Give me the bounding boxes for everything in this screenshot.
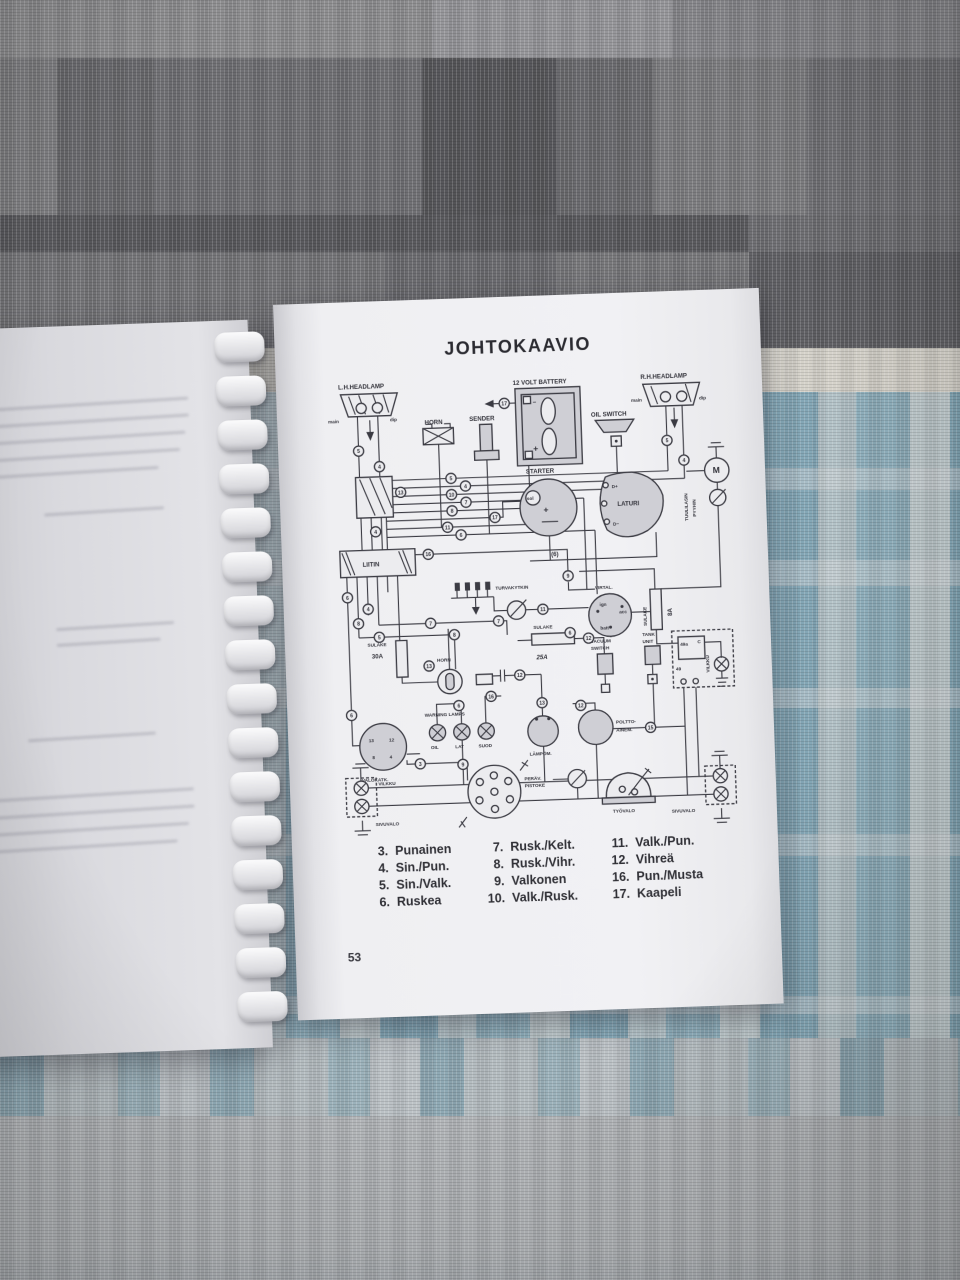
legend-column-2: 7.Rusk./Kelt. 8.Rusk./Vihr. 9.Valkonen 1…: [477, 838, 578, 906]
fuse25-amp: 25A: [535, 654, 547, 661]
relay-49a: 49a: [680, 642, 688, 647]
lh-headlamp-label: L.H.HEADLAMP: [338, 383, 384, 392]
tank-unit: TANK UNIT: [642, 632, 661, 684]
vacuum-label-2: SWITCH: [591, 646, 610, 652]
junction-number: 11: [445, 525, 451, 531]
legend-color: Punainen: [395, 842, 452, 858]
tank-label-2: UNIT: [642, 639, 653, 644]
starter-plus: +: [543, 505, 548, 515]
binding-tooth: [222, 551, 273, 583]
vacuum-switch: VACUUM SWITCH: [591, 638, 614, 692]
legend-item: 6.Ruskea: [364, 893, 454, 910]
binding-tooth: [237, 991, 288, 1023]
legend-number: 10.: [479, 891, 505, 906]
legend-number: 8.: [478, 857, 504, 872]
wiring-diagram: L.H.HEADLAMP main dip HORN SENDER: [326, 367, 748, 838]
binding-tooth: [225, 639, 276, 671]
fuse8-amp: 8A: [667, 607, 674, 616]
lh-main-label: main: [328, 419, 339, 424]
poltto-label-1: POLTTO-: [616, 719, 637, 725]
legend-color: Sin./Valk.: [396, 876, 451, 892]
horn-label: HORN: [425, 419, 443, 427]
battery-label: 12 VOLT BATTERY: [513, 378, 567, 387]
legend-item: 17.Kaapeli: [604, 884, 704, 901]
virtal-ign: ign: [600, 602, 607, 607]
junction-number: 4: [374, 530, 377, 536]
page-title: JOHTOKAAVIO: [274, 328, 760, 366]
perav-label-1: PERÄV.: [524, 775, 541, 782]
motor-m-label: M: [713, 465, 721, 475]
photo-scene: JOHTOKAAVIO L.H.HEADLAMP: [0, 0, 960, 1280]
virtal-label: VIRTAL.: [595, 585, 613, 591]
junction-number: 7: [429, 621, 432, 627]
starter-label: STARTER: [526, 468, 555, 476]
junction-number: 13: [426, 664, 432, 670]
page-number: 53: [348, 950, 362, 964]
relay-vilkku-label: VILKKU: [705, 654, 711, 672]
legend-column-1: 3.Punainen 4.Sin./Pun. 5.Sin./Valk. 6.Ru…: [362, 842, 453, 910]
blurred-text-line: [57, 638, 161, 647]
legend-item: 12.Vihreä: [603, 850, 703, 867]
junction-number: 15: [648, 725, 654, 731]
blurred-text-line: [44, 506, 164, 516]
wire-color-legend: 3.Punainen 4.Sin./Pun. 5.Sin./Valk. 6.Ru…: [362, 833, 704, 910]
lh-dip-label: dip: [390, 417, 397, 422]
junction-number: 12: [578, 703, 584, 709]
junction-number: 17: [492, 515, 498, 521]
turvakytkin-label: TURVAKYTKIN: [495, 584, 529, 590]
rug-band-top: [0, 0, 960, 58]
legend-number: 5.: [363, 878, 389, 893]
binding-tooth: [220, 507, 271, 539]
alternator: D+ LATURI D−: [599, 471, 664, 538]
rh-headlamp: R.H.HEADLAMP main dip: [630, 372, 707, 421]
binding-tooth: [219, 463, 270, 495]
blurred-text-line: [0, 822, 189, 840]
legend-color: Sin./Pun.: [395, 859, 449, 875]
poltto-label-2: AINEM.: [616, 727, 632, 733]
legend-color: Rusk./Vihr.: [511, 855, 576, 871]
warning-lamps: WARNING LAMPS OIL LAT SUOD: [425, 711, 495, 751]
inline-switch: [568, 769, 587, 788]
legend-color: Valk./Pun.: [635, 833, 695, 849]
junction-number: 4: [378, 465, 381, 471]
junction-number: 4: [367, 607, 370, 613]
blurred-text-line: [28, 732, 156, 743]
binding-tooth: [226, 683, 277, 715]
manual-book: JOHTOKAAVIO L.H.HEADLAMP: [0, 279, 863, 1071]
legend-number: 7.: [477, 840, 503, 855]
legend-color: Valk./Rusk.: [512, 889, 578, 905]
junction-number: 8: [453, 633, 456, 639]
junction-number: 13: [398, 490, 404, 496]
temperature-gauge: LÄMPÖM.: [527, 715, 559, 757]
wiper-label-2: PYYHIN: [691, 499, 697, 517]
binding-tooth: [214, 331, 265, 363]
legend-number: 11.: [602, 836, 628, 851]
junction-number: 4: [682, 458, 685, 464]
battery: 12 VOLT BATTERY − +: [513, 377, 583, 465]
legend-item: 11.Valk./Pun.: [602, 833, 702, 850]
legend-item: 10.Valk./Rusk.: [479, 889, 578, 906]
lamp-oil-label: OIL: [431, 745, 439, 750]
left-lamps: VILKKU SIVUVALO: [345, 763, 400, 836]
junction-number: 13: [539, 701, 545, 707]
laturi-dminus: D−: [613, 521, 620, 526]
rug-band-bottom: [0, 1116, 960, 1280]
blurred-text-line: [0, 448, 180, 466]
wire-6-label: (6): [551, 551, 559, 558]
lh-headlamp: L.H.HEADLAMP main dip: [327, 383, 399, 434]
connector-pins: [455, 582, 491, 591]
fuel-gauge: POLTTO- AINEM.: [578, 709, 637, 746]
junction-number: 5: [666, 438, 669, 444]
binding-tooth: [231, 815, 282, 847]
blurred-text-line: [0, 413, 189, 432]
junction-number: 6: [460, 533, 463, 539]
junction-number: 9: [462, 762, 465, 768]
junction-number: 7: [497, 619, 500, 625]
dip-switch-box: [355, 476, 393, 518]
legend-color: Vihreä: [636, 851, 674, 866]
legend-number: 17.: [604, 887, 630, 902]
junction-number: 9: [567, 574, 570, 580]
blurred-text-line: [0, 431, 185, 450]
junction-number: 6: [569, 631, 572, 637]
binding-tooth: [232, 859, 283, 891]
blurred-text-line: [0, 805, 195, 824]
rug-band-dark-gray: [0, 58, 960, 215]
junction-number: 17: [501, 401, 507, 407]
blurred-text-line: [0, 397, 188, 415]
wiper-motor: M TUULILASIN PYYHIN: [681, 442, 730, 521]
junction-number: 4: [464, 484, 467, 490]
rh-main-label: main: [631, 398, 642, 403]
junction-number: 5: [378, 635, 381, 641]
starter-sol-label: sol: [527, 496, 534, 501]
oil-switch: OIL SWITCH: [591, 410, 635, 447]
warning-lamps-label: WARNING LAMPS: [425, 712, 465, 718]
legend-number: 3.: [362, 844, 388, 859]
legend-number: 4.: [363, 861, 389, 876]
legend-color: Kaapeli: [637, 885, 682, 901]
junction-number: 5: [449, 476, 452, 482]
binding-tooth: [228, 727, 279, 759]
blurred-text-line: [0, 466, 159, 483]
binding-tooth: [223, 595, 274, 627]
lamp-suod-label: SUOD: [479, 743, 493, 748]
junction-number: 7: [465, 500, 468, 506]
junction-number: 6: [350, 713, 353, 719]
legend-color: Rusk./Kelt.: [510, 838, 575, 854]
legend-item: 5.Sin./Valk.: [363, 876, 453, 893]
lamp-lat-label: LAT: [455, 744, 464, 749]
fuse25-label: SULAKE: [533, 624, 552, 630]
wiper-label-1: TUULILASIN: [683, 493, 689, 521]
junction-number: 3: [419, 762, 422, 768]
fuse-8a: SULAKE 8A: [642, 588, 675, 630]
rug-band-dark-stripe: [0, 215, 960, 252]
perav-label-2: PISTOKE: [525, 783, 546, 789]
fuse30-label: SULAKE: [367, 642, 386, 648]
liitin-connector: LIITIN: [340, 549, 416, 578]
relay-49: 49: [676, 666, 682, 671]
junction-number: 8: [357, 622, 360, 628]
starter: STARTER sol + (6): [519, 467, 579, 559]
legend-item: 7.Rusk./Kelt.: [477, 838, 576, 855]
junction-number: 16: [425, 552, 431, 558]
valokatk-12: 12: [389, 737, 395, 742]
junction-number: 10: [449, 493, 455, 499]
binding-tooth: [229, 771, 280, 803]
blurred-text-line: [0, 839, 178, 857]
trailer-socket: PERÄV. PISTOKE: [457, 759, 547, 827]
binding-tooth: [217, 419, 268, 451]
work-light-gauge: TYÖVALO: [601, 768, 655, 814]
legend-number: 16.: [603, 870, 629, 885]
blurred-text-line: [56, 621, 174, 631]
legend-color: Valkonen: [511, 872, 566, 888]
legend-item: 4.Sin./Pun.: [363, 859, 453, 876]
right-lamps: SIVUVALO: [670, 751, 737, 824]
legend-color: Pun./Musta: [636, 867, 703, 883]
battery-plus: +: [533, 443, 538, 453]
tyovalo-label: TYÖVALO: [613, 807, 636, 814]
laturi-dplus: D+: [612, 484, 619, 489]
blurred-text-line: [0, 787, 194, 802]
legend-item: 3.Punainen: [362, 842, 452, 859]
oil-switch-label: OIL SWITCH: [591, 410, 627, 418]
junction-number: 8: [451, 509, 454, 515]
sender: SENDER: [469, 415, 499, 461]
virtal-batt: batt: [600, 625, 609, 630]
legend-number: 12.: [603, 853, 629, 868]
binding-tooth: [235, 947, 286, 979]
legend-number: 9.: [478, 874, 504, 889]
right-page: JOHTOKAAVIO L.H.HEADLAMP: [273, 288, 784, 1021]
ignition-switch: VIRTAL. ign acc batt: [588, 584, 632, 637]
fuse8-label: SULAKE: [642, 607, 648, 626]
fuse-30a: SULAKE 30A: [367, 640, 408, 678]
junction-number: 16: [488, 694, 494, 700]
virtal-acc: acc: [619, 609, 627, 614]
junction-number: 11: [540, 607, 546, 613]
junction-number: 5: [357, 449, 360, 455]
liitin-label: LIITIN: [362, 561, 379, 569]
legend-item: 16.Pun./Musta: [603, 867, 703, 884]
laturi-label: LATURI: [617, 500, 639, 508]
tank-label-1: TANK: [642, 632, 655, 637]
rh-headlamp-label: R.H.HEADLAMP: [640, 373, 687, 382]
valokatk-13: 13: [369, 738, 375, 743]
flasher-relay: 49a C 49 VILKKU: [672, 629, 735, 688]
junction-number: 6: [346, 596, 349, 602]
vilkku-lamp-label: VILKKU: [378, 781, 396, 787]
legend-item: 9.Valkonen: [478, 872, 577, 889]
horn-push-label-1: HORN: [437, 657, 452, 662]
junction-number: 12: [517, 673, 523, 679]
legend-number: 6.: [364, 895, 390, 910]
fuse30-amp: 30A: [372, 653, 384, 660]
legend-item: 8.Rusk./Vihr.: [478, 855, 577, 872]
legend-column-3: 11.Valk./Pun. 12.Vihreä 16.Pun./Musta 17…: [602, 833, 704, 901]
junction-number: 12: [586, 636, 592, 642]
sivuvalo-right-label: SIVUVALO: [672, 808, 696, 814]
rh-dip-label: dip: [699, 395, 706, 400]
lampom-label: LÄMPÖM.: [530, 750, 552, 757]
sivuvalo-left-label: SIVUVALO: [376, 821, 400, 827]
horn: HORN: [423, 418, 454, 444]
legend-color: Ruskea: [397, 893, 442, 909]
sender-label: SENDER: [469, 415, 495, 423]
binding-tooth: [215, 375, 266, 407]
junction-number: 6: [457, 704, 460, 710]
diode: [476, 669, 505, 684]
light-switch: 13 12 8 4 VALOKATK.: [359, 723, 408, 783]
binding-tooth: [234, 903, 285, 935]
safety-switch: TURVAKYTKIN: [495, 584, 530, 620]
